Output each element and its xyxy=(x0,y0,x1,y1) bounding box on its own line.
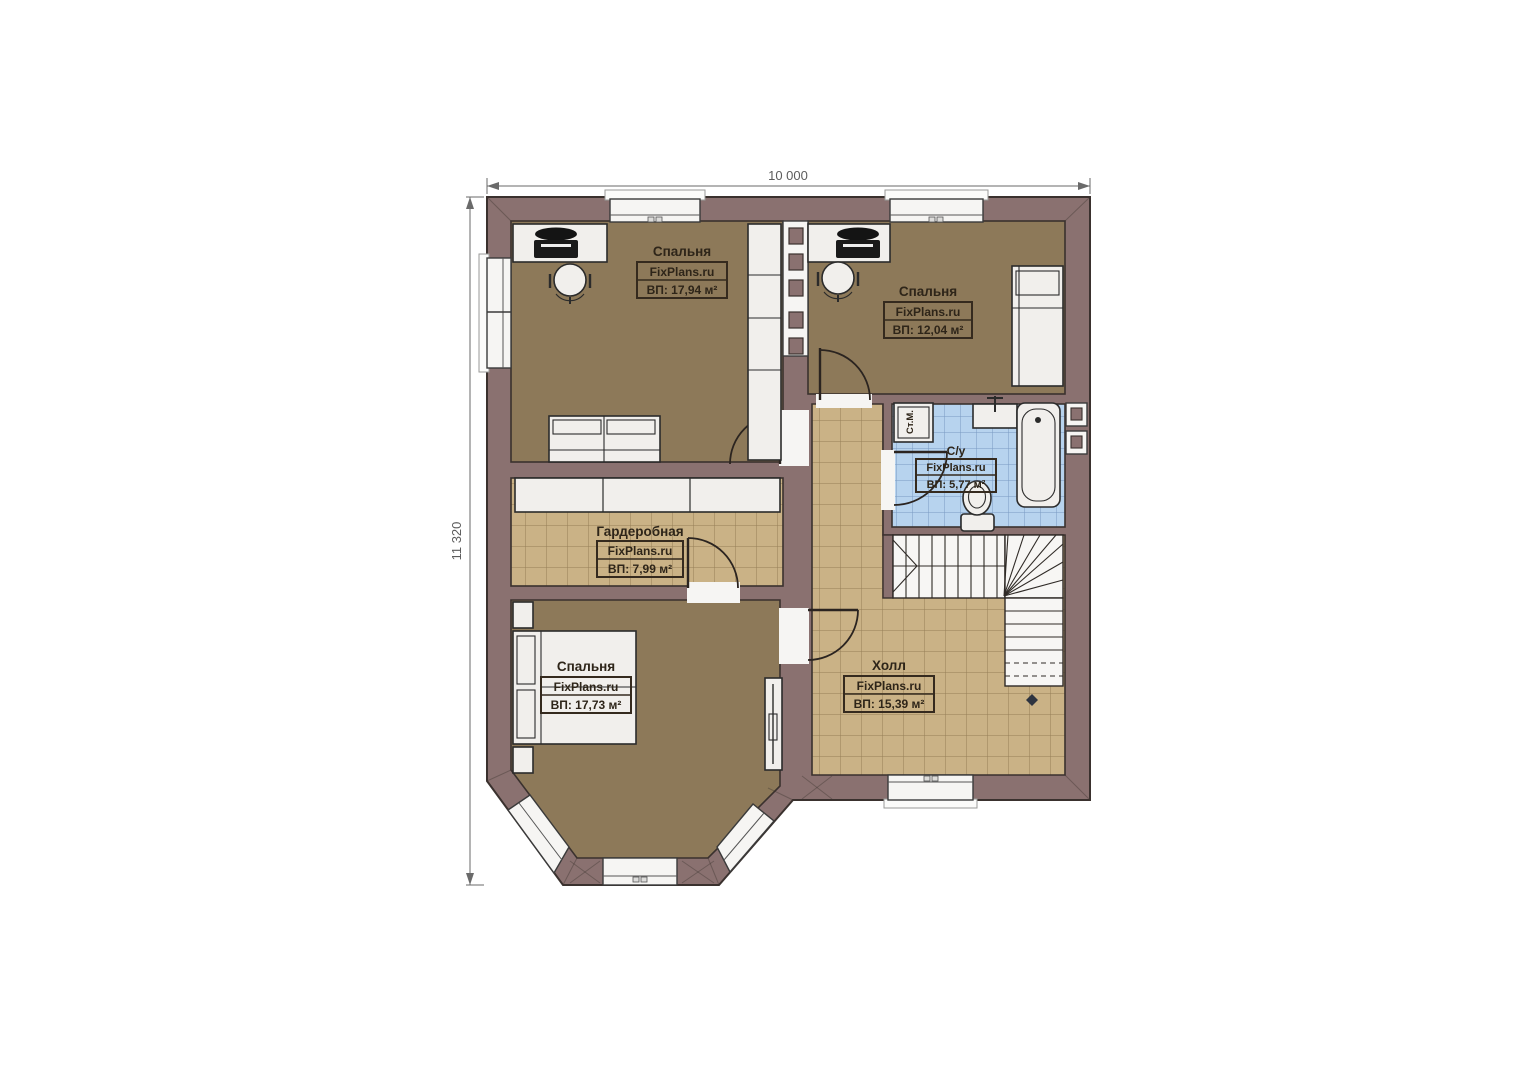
room-name: Спальня xyxy=(557,659,615,674)
desk-bedroom2 xyxy=(808,224,890,262)
label-wardrobe: Гардеробная FixPlans.ru ВП: 7,99 м² xyxy=(596,524,683,577)
room-name: Гардеробная xyxy=(596,524,683,539)
washing-machine-label: Ст.М. xyxy=(905,410,916,434)
floor-plan-drawing: Спальня FixPlans.ru ВП: 17,94 м² Спальня… xyxy=(0,0,1528,1080)
desk-bedroom1 xyxy=(513,224,607,262)
room-area: ВП: 17,73 м² xyxy=(551,698,622,712)
floor-plan-page: Спальня FixPlans.ru ВП: 17,94 м² Спальня… xyxy=(0,0,1528,1080)
bathtub xyxy=(1017,403,1060,507)
vent-column xyxy=(783,221,808,356)
room-name: Холл xyxy=(872,658,906,673)
window-top-bedroom1 xyxy=(605,190,705,222)
room-watermark: FixPlans.ru xyxy=(896,305,961,319)
window-top-bedroom2 xyxy=(885,190,988,222)
window-hall-bottom xyxy=(884,775,977,808)
closet-bedroom1 xyxy=(748,224,781,460)
bed-bedroom1 xyxy=(549,416,660,462)
room-area: ВП: 12,04 м² xyxy=(893,323,964,337)
room-area: ВП: 5,77 м² xyxy=(927,479,986,491)
dimension-width-label: 10 000 xyxy=(768,168,808,183)
window-left-bedroom1 xyxy=(479,254,511,372)
bed-bedroom2 xyxy=(1012,266,1063,386)
dimension-top: 10 000 xyxy=(487,168,1090,194)
room-name: Спальня xyxy=(653,244,711,259)
window-bay-bottom xyxy=(603,858,677,885)
room-area: ВП: 17,94 м² xyxy=(647,283,718,297)
room-watermark: FixPlans.ru xyxy=(554,680,619,694)
room-name: Спальня xyxy=(899,284,957,299)
room-name: С/у xyxy=(947,444,966,458)
nightstand-top xyxy=(513,602,533,628)
wardrobe-closet xyxy=(515,478,780,512)
radiator-bedroom3 xyxy=(765,678,782,770)
room-watermark: FixPlans.ru xyxy=(608,544,673,558)
room-watermark: FixPlans.ru xyxy=(926,462,985,474)
room-watermark: FixPlans.ru xyxy=(857,679,922,693)
dimension-height-label: 11 320 xyxy=(449,522,464,561)
room-watermark: FixPlans.ru xyxy=(650,265,715,279)
room-area: ВП: 7,99 м² xyxy=(608,562,672,576)
room-area: ВП: 15,39 м² xyxy=(854,697,925,711)
nightstand-bottom xyxy=(513,747,533,773)
